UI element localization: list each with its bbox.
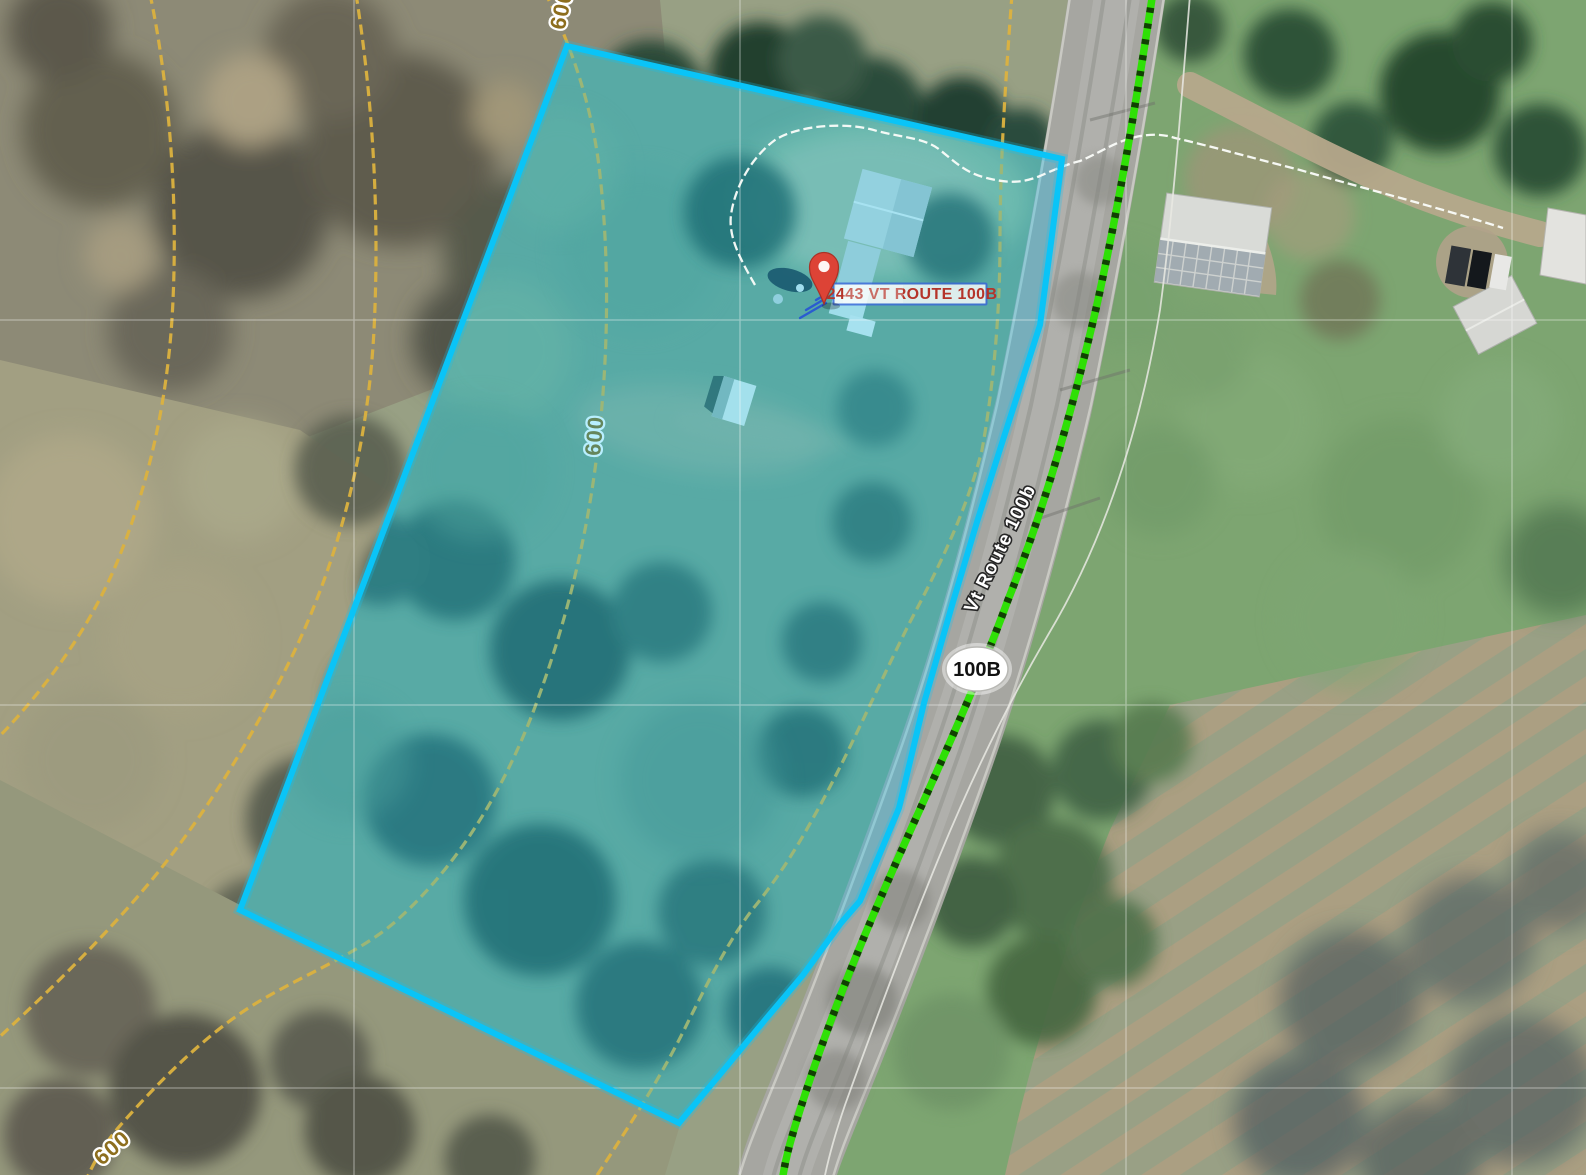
route-shield: 100B [942, 643, 1012, 695]
address-label: 2443 VT ROUTE 100B [827, 284, 998, 305]
pin-center-dot [818, 261, 829, 272]
gis-map-canvas[interactable]: 600 600 600 Vt Route 100b 100B [0, 0, 1586, 1175]
route-shield-label: 100B [953, 659, 1001, 681]
edge-building [1540, 208, 1586, 284]
